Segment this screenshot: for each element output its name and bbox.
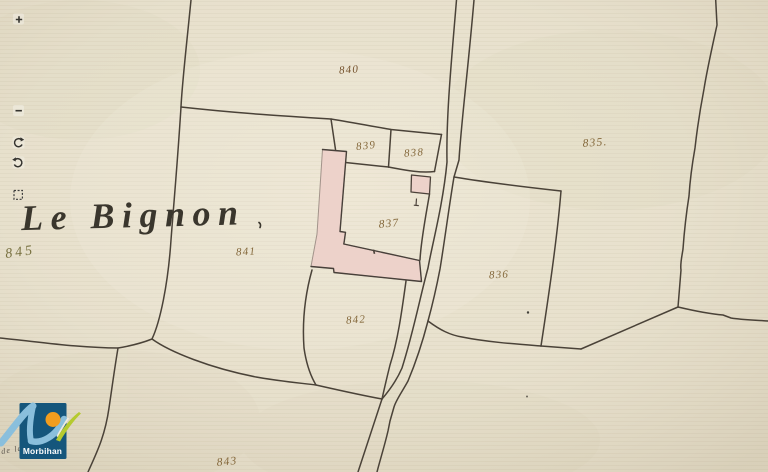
svg-text:Le Bignon: Le Bignon bbox=[20, 192, 247, 238]
svg-text:837: 837 bbox=[378, 217, 400, 231]
svg-text:836: 836 bbox=[489, 268, 510, 281]
svg-text:841: 841 bbox=[236, 245, 257, 258]
svg-text:838: 838 bbox=[404, 146, 425, 159]
svg-text:Morbihan: Morbihan bbox=[23, 446, 62, 456]
svg-text:840: 840 bbox=[339, 63, 360, 76]
svg-text:835.: 835. bbox=[582, 136, 608, 150]
svg-text:843: 843 bbox=[216, 455, 238, 469]
svg-text:839: 839 bbox=[355, 139, 376, 153]
svg-text:842: 842 bbox=[346, 313, 367, 326]
